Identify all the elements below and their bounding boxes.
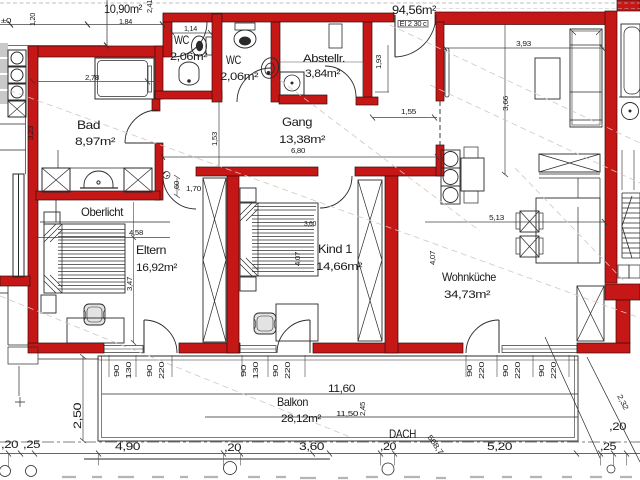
svg-text:2,50: 2,50: [72, 403, 84, 429]
svg-text:94,56m²: 94,56m²: [392, 3, 436, 17]
svg-text:,20: ,20: [380, 441, 396, 453]
svg-text:3,93: 3,93: [516, 39, 531, 48]
svg-text:1,53: 1,53: [210, 132, 219, 146]
svg-text:90: 90: [465, 365, 474, 377]
svg-text:16,92m²: 16,92m²: [136, 262, 178, 274]
svg-text:90: 90: [145, 365, 154, 377]
svg-text:14,66m²: 14,66m²: [316, 261, 363, 273]
svg-text:130: 130: [124, 362, 133, 379]
svg-text:,25: ,25: [23, 439, 40, 451]
svg-text:Wohnküche: Wohnküche: [442, 270, 497, 284]
svg-text:,20: ,20: [1, 439, 18, 451]
svg-text:2,06m²: 2,06m²: [220, 71, 259, 83]
svg-text:220: 220: [283, 362, 292, 379]
svg-text:Eltern: Eltern: [136, 243, 166, 257]
svg-text:34,73m²: 34,73m²: [444, 289, 491, 301]
svg-text:90: 90: [112, 365, 121, 377]
svg-text:4,07: 4,07: [293, 252, 302, 266]
svg-text:11,50: 11,50: [336, 409, 358, 418]
svg-text:EI 2 30 c: EI 2 30 c: [400, 19, 428, 28]
svg-text:4,07: 4,07: [428, 251, 437, 265]
svg-text:3,60: 3,60: [299, 441, 324, 453]
svg-text:3,84m²: 3,84m²: [305, 68, 341, 80]
svg-text:Oberlicht: Oberlicht: [81, 205, 124, 219]
svg-text:Gang: Gang: [282, 115, 312, 129]
svg-text:5,20: 5,20: [487, 441, 512, 453]
svg-text:,20: ,20: [609, 421, 626, 433]
svg-text:WC: WC: [226, 53, 242, 67]
svg-text:Kind 1: Kind 1: [318, 242, 353, 256]
svg-text:,60: ,60: [172, 181, 181, 191]
svg-text:6,80: 6,80: [291, 146, 305, 155]
svg-text:11,60: 11,60: [328, 383, 355, 395]
svg-text:220: 220: [477, 362, 486, 379]
svg-text:,20: ,20: [224, 442, 241, 454]
svg-text:2,45: 2,45: [358, 402, 367, 416]
svg-text:DACH: DACH: [389, 427, 416, 441]
svg-text:90: 90: [271, 365, 280, 377]
svg-text:±0: ±0: [1, 16, 11, 25]
svg-text:WC: WC: [174, 33, 190, 47]
svg-text:10,90m²: 10,90m²: [104, 2, 142, 16]
svg-text:28,12m²: 28,12m²: [281, 413, 322, 425]
svg-text:220: 220: [549, 362, 558, 379]
svg-text:1,14: 1,14: [184, 24, 197, 33]
svg-text:90: 90: [501, 365, 510, 377]
svg-text:1,84: 1,84: [119, 17, 132, 26]
svg-text:,25: ,25: [600, 441, 616, 453]
svg-text:3,47: 3,47: [125, 277, 134, 291]
svg-text:3,66: 3,66: [501, 96, 510, 111]
svg-text:2,78: 2,78: [85, 73, 99, 82]
svg-text:1,70: 1,70: [186, 184, 201, 193]
svg-text:13,38m²: 13,38m²: [279, 134, 326, 146]
svg-text:2,41: 2,41: [145, 0, 154, 13]
svg-text:8,97m²: 8,97m²: [75, 136, 116, 148]
svg-text:220: 220: [513, 362, 522, 379]
svg-text:5,13: 5,13: [489, 213, 504, 222]
svg-text:Bad: Bad: [77, 118, 100, 132]
svg-text:90: 90: [537, 365, 546, 377]
svg-text:Balkon: Balkon: [277, 395, 308, 409]
svg-text:1,55: 1,55: [401, 107, 416, 116]
svg-text:4,58: 4,58: [129, 228, 143, 237]
svg-text:1,93: 1,93: [374, 55, 383, 69]
svg-text:4,90: 4,90: [115, 441, 140, 453]
svg-text:130: 130: [251, 362, 260, 379]
svg-text:Abstellr.: Abstellr.: [303, 53, 345, 65]
svg-text:90: 90: [239, 365, 248, 377]
svg-text:1,20: 1,20: [28, 13, 37, 26]
svg-text:220: 220: [157, 362, 166, 379]
svg-text:3,23: 3,23: [26, 126, 35, 140]
svg-text:2,06m²: 2,06m²: [170, 51, 208, 63]
svg-text:3,60: 3,60: [304, 219, 316, 228]
